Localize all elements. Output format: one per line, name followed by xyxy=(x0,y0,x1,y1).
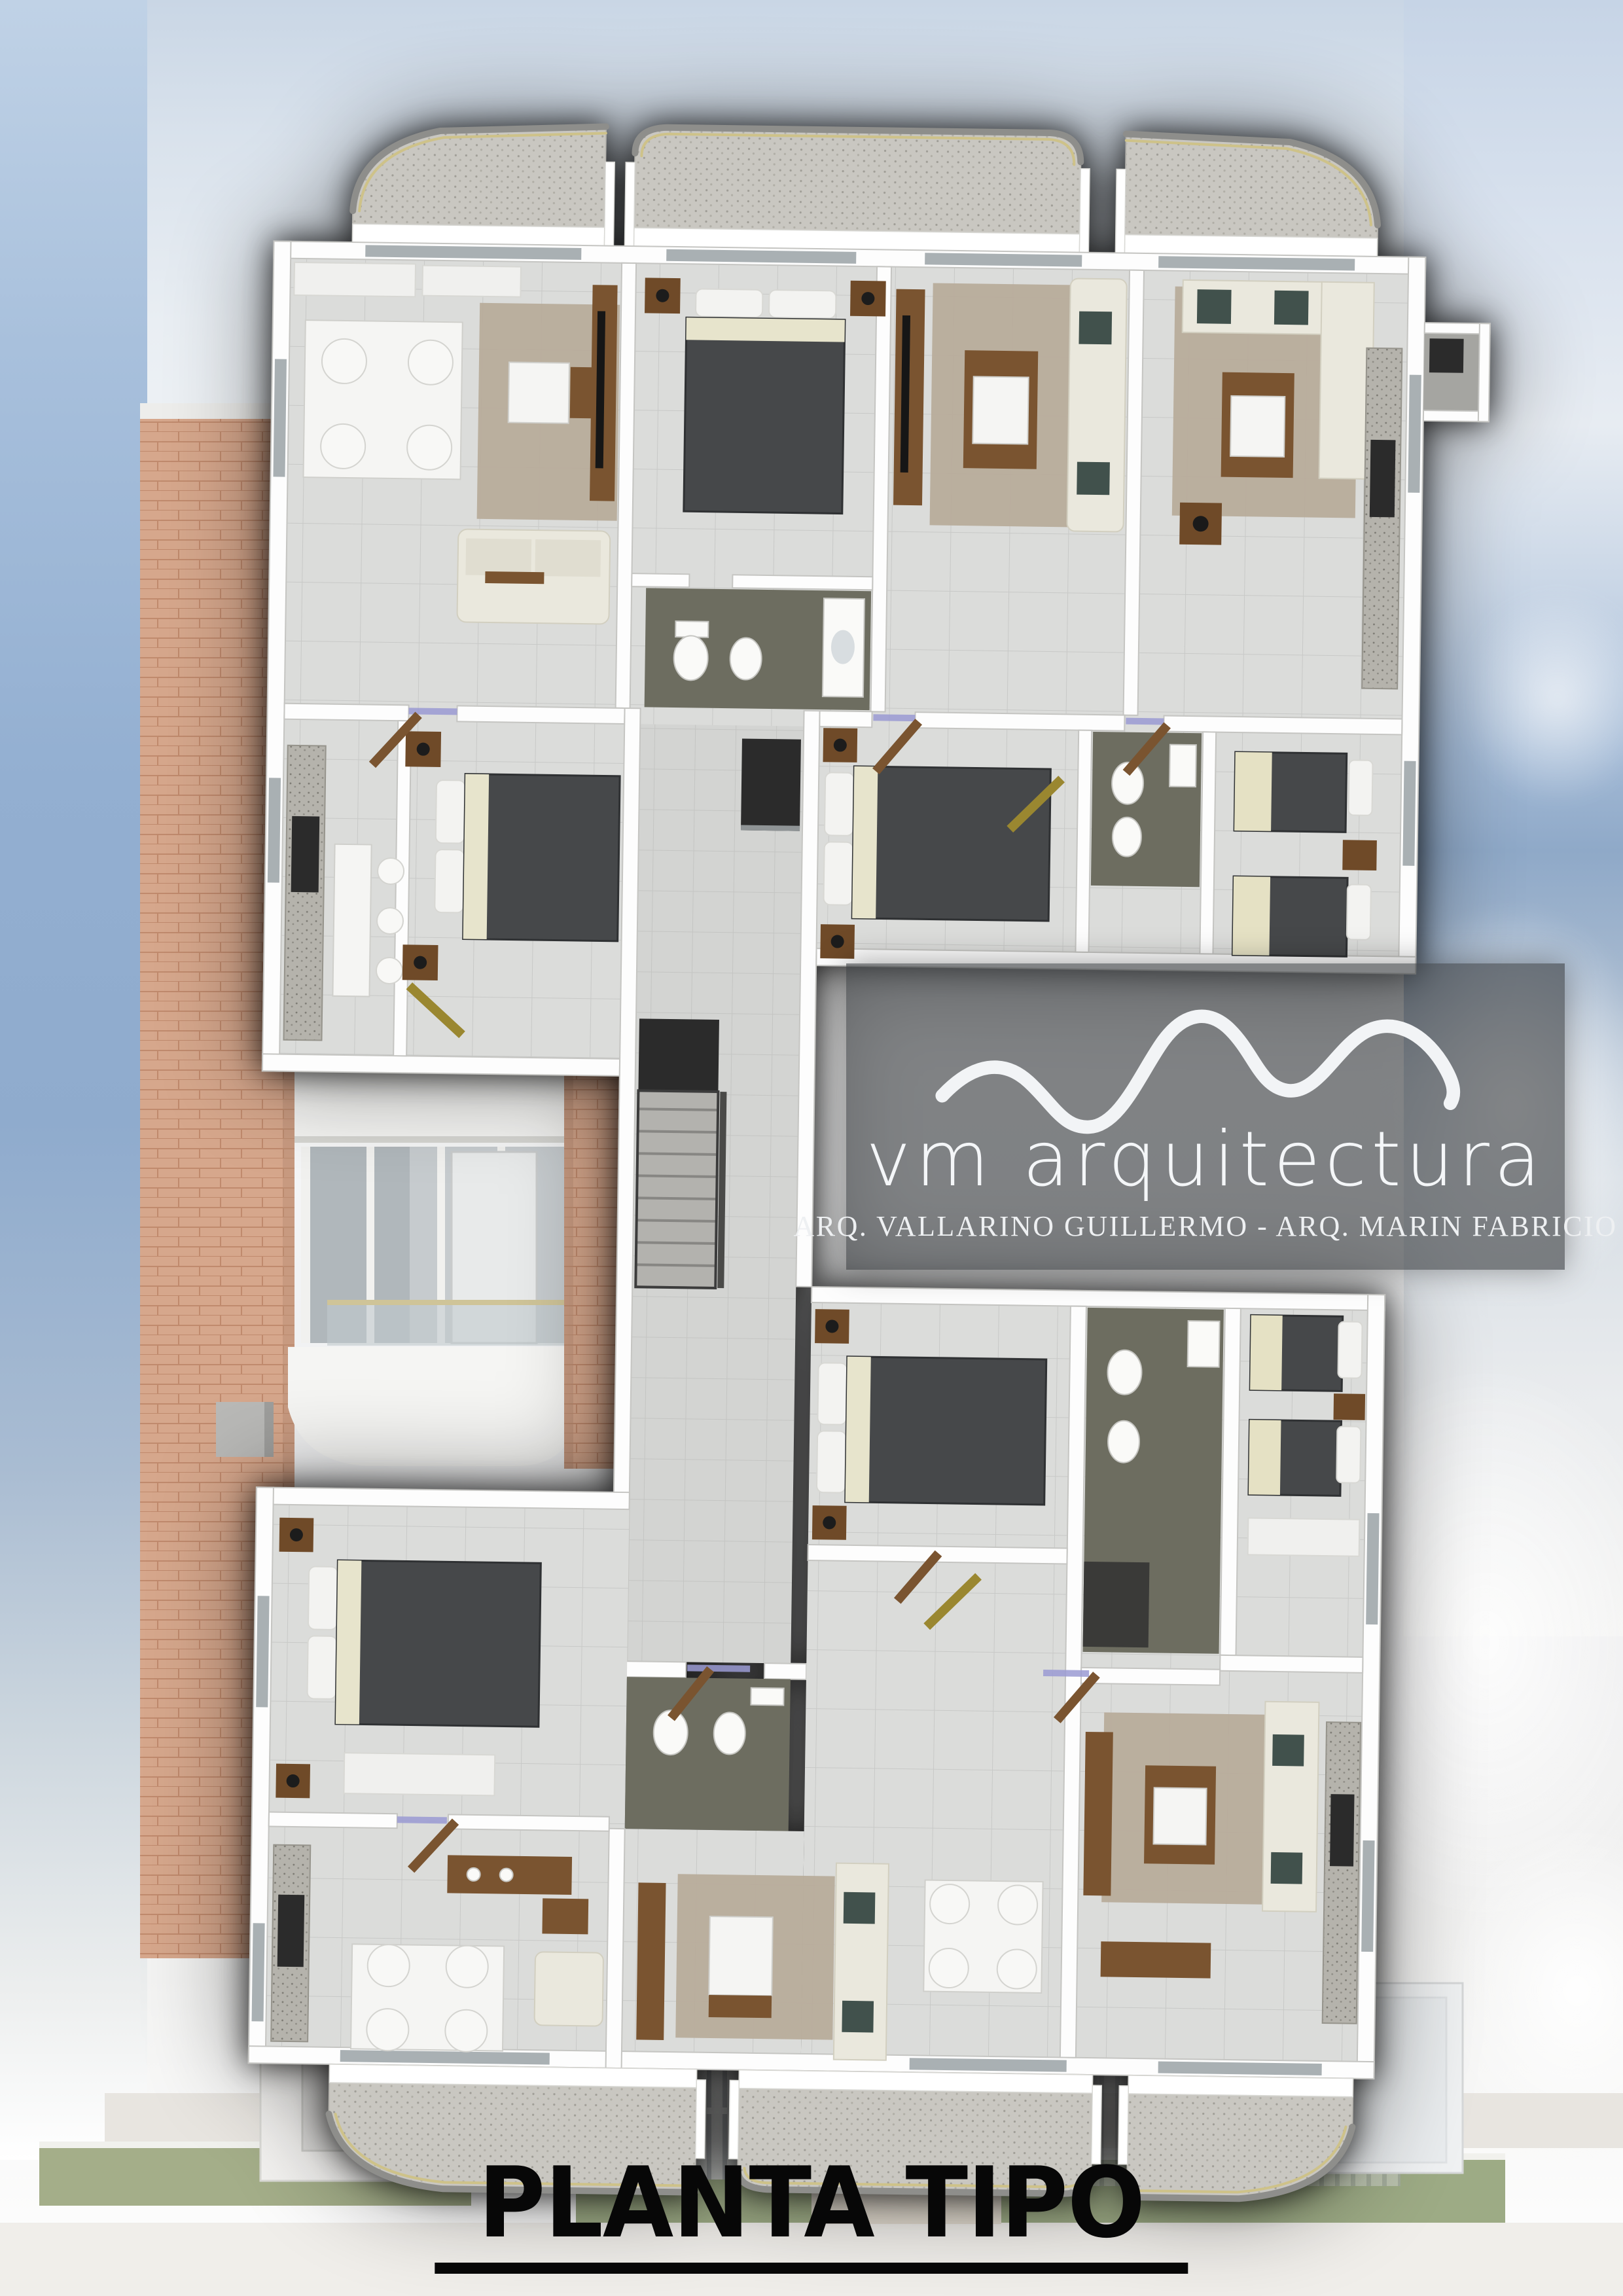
balcony-top-left xyxy=(353,123,607,245)
bathroom xyxy=(1083,1308,1224,1654)
brand-name: vm arquitectura xyxy=(866,1122,1545,1198)
balcony-divider xyxy=(604,162,615,245)
balcony-divider xyxy=(1115,169,1126,253)
balcony-top-right xyxy=(1124,134,1379,257)
balcony-divider xyxy=(624,162,635,246)
twin-beds xyxy=(1248,1315,1366,1556)
kitchen-counter xyxy=(1323,1722,1361,2024)
plan-title: PLANTA TIPO xyxy=(435,2155,1188,2274)
architect-credits: ARQ. VALLARINO GUILLERMO - ARQ. MARIN FA… xyxy=(793,1210,1617,1243)
bathroom xyxy=(645,588,872,710)
stair-corridor xyxy=(609,708,820,1831)
page: vm arquitectura ARQ. VALLARINO GUILLERMO… xyxy=(0,0,1623,2296)
balcony-top-middle xyxy=(633,127,1080,252)
laundry-nook xyxy=(1423,323,1490,422)
staircase xyxy=(635,1090,718,1288)
kitchen-counter xyxy=(283,745,325,1041)
balcony-divider xyxy=(1079,169,1090,253)
watermark-panel: vm arquitectura ARQ. VALLARINO GUILLERMO… xyxy=(846,963,1565,1270)
kitchen-counter xyxy=(1362,348,1402,689)
bathroom xyxy=(625,1677,791,1831)
elevator-shaft xyxy=(741,738,801,831)
plan-title-text: PLANTA TIPO xyxy=(478,2155,1145,2252)
